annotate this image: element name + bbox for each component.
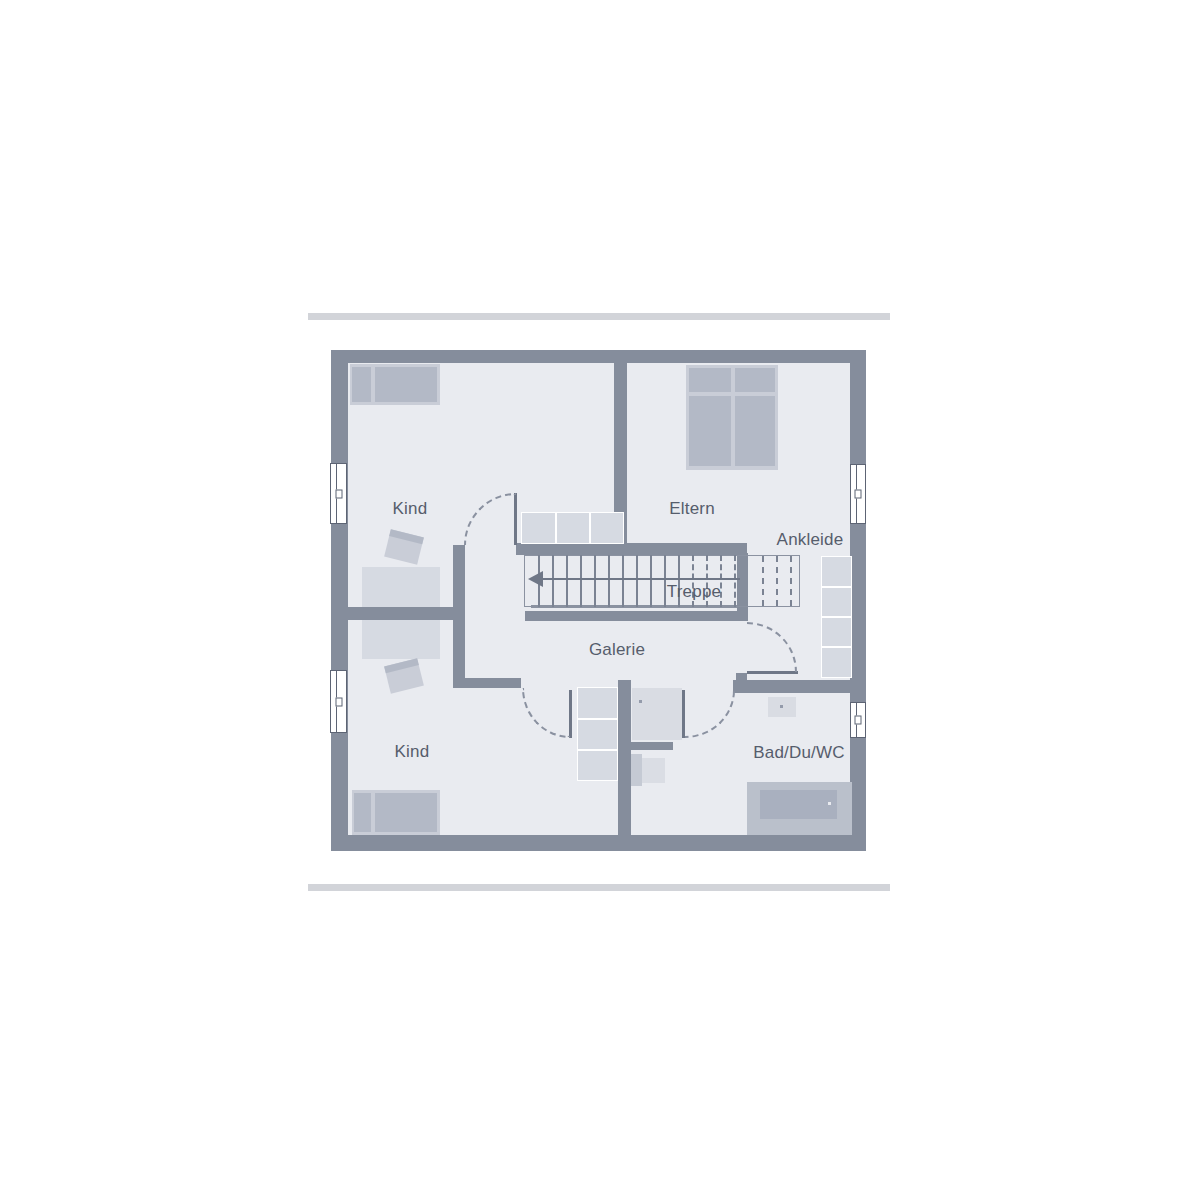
window-handle <box>855 490 862 499</box>
sideboard-divider <box>555 513 557 543</box>
closet-kind-bottom <box>578 688 617 780</box>
wardrobe-divider <box>822 586 851 588</box>
wall-bad-door-post <box>736 673 747 682</box>
wall-under-stair <box>525 611 748 621</box>
stair-tread <box>594 555 596 607</box>
outer-wall-top <box>331 350 866 363</box>
window-left-top <box>330 463 347 524</box>
closet-divider <box>578 718 617 720</box>
room-label-ankleide: Ankleide <box>777 531 844 548</box>
bed-kind-bottom <box>352 790 440 835</box>
floorplan-page: Kind Eltern Ankleide Treppe Galerie Kind… <box>0 0 1200 1200</box>
bathtub-basin <box>760 790 837 819</box>
bed-pillow-left <box>689 368 731 392</box>
sideboard-divider <box>589 513 591 543</box>
wc-cistern <box>631 754 642 786</box>
bed-pillow-right <box>735 368 775 392</box>
outer-wall-right <box>850 363 866 835</box>
stair-tread <box>608 555 610 607</box>
shower-drain <box>639 700 642 703</box>
room-label-galerie: Galerie <box>589 641 645 658</box>
stair-tread-dashed <box>790 556 792 606</box>
window-handle <box>335 489 342 498</box>
room-label-kind-top: Kind <box>393 500 428 517</box>
window-handle <box>335 697 342 706</box>
window-right-bottom <box>850 702 866 738</box>
wall-kindbottom-top <box>453 678 521 688</box>
bed-mattress <box>375 367 437 402</box>
desk-kind-top <box>362 567 440 607</box>
desk-kind-bottom <box>362 620 440 659</box>
stair-tread <box>552 555 554 607</box>
outer-wall-left <box>331 363 348 835</box>
wall-shower-bottom <box>618 742 673 750</box>
stair-tread-dashed <box>734 555 736 607</box>
room-label-kind-bottom: Kind <box>395 743 430 760</box>
sink <box>768 697 796 717</box>
wardrobe-divider <box>822 616 851 618</box>
sink-tap <box>780 705 783 708</box>
top-decor-bar <box>308 313 890 320</box>
window-handle <box>855 716 862 725</box>
closet-divider <box>578 749 617 751</box>
stair-arrow-line <box>541 578 740 580</box>
outer-wall-bottom <box>331 835 866 851</box>
window-left-bottom <box>330 670 347 733</box>
bed-kind-top <box>350 364 440 405</box>
wardrobe-divider <box>822 646 851 648</box>
sideboard-galerie <box>522 513 623 543</box>
bed-pillow <box>354 793 371 832</box>
stair-direction-arrow-icon <box>528 571 543 587</box>
wall-stair-top <box>516 543 747 555</box>
room-label-bad: Bad/Du/WC <box>753 744 845 761</box>
stair-tread-dashed <box>762 556 764 606</box>
wall-bad-top <box>733 680 852 693</box>
room-label-treppe: Treppe <box>667 583 721 600</box>
wc-toilet <box>642 758 665 783</box>
stair-tread-dashed <box>776 556 778 606</box>
stair-tread <box>566 555 568 607</box>
bed-mattress <box>375 793 437 832</box>
window-right-top <box>850 464 866 524</box>
wardrobe-ankleide <box>822 557 851 677</box>
bottom-decor-bar <box>308 884 890 891</box>
wall-bottom-central <box>618 680 631 835</box>
wall-kindtop-right <box>453 545 465 688</box>
stair-tread <box>636 555 638 607</box>
wall-kind-divider <box>348 607 453 620</box>
bathtub-tap <box>828 802 831 805</box>
bathtub <box>747 782 852 835</box>
stair-tread <box>580 555 582 607</box>
shower <box>632 688 682 740</box>
room-label-eltern: Eltern <box>669 500 715 517</box>
bed-mattress-left <box>689 396 731 466</box>
bed-pillow <box>352 367 371 402</box>
double-bed-eltern <box>686 365 778 470</box>
stair-tread <box>622 555 624 607</box>
stair-tread <box>650 555 652 607</box>
bed-mattress-right <box>735 396 775 466</box>
stair-tread <box>664 555 666 607</box>
